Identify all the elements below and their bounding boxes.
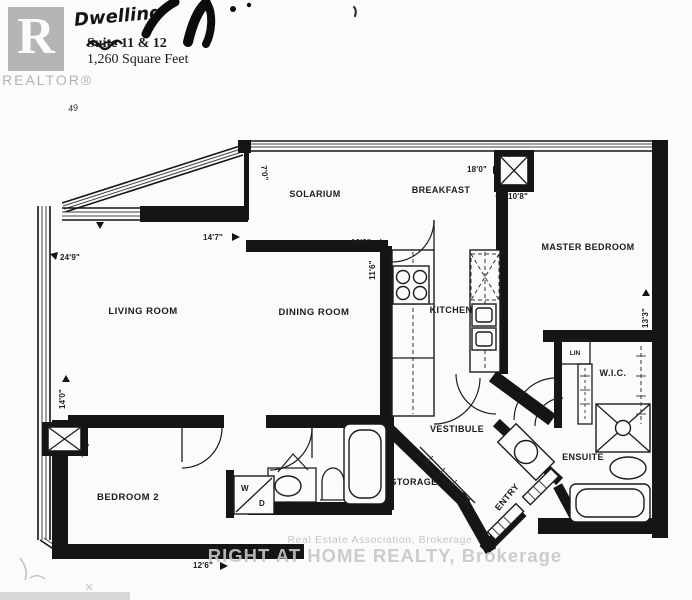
watermark-large: RIGHT AT HOME REALTY, Brokerage: [208, 545, 562, 566]
room-label-bedroom2: BEDROOM 2: [97, 492, 159, 503]
room-label-ensuite: ENSUITE: [562, 452, 604, 462]
ensuite-tub-icon: [570, 484, 650, 522]
wall-right: [652, 140, 668, 538]
dim-master-width: 10'8": [508, 192, 528, 201]
room-label-kitchen: KITCHEN: [430, 305, 473, 315]
room-label-living: LIVING ROOM: [108, 306, 177, 317]
marker-scrawl: [146, 2, 356, 44]
washer-label: W: [241, 484, 249, 493]
room-label-dining: DINING ROOM: [279, 307, 350, 318]
toilet-icon: [320, 468, 346, 500]
wall-top-corner: [238, 140, 251, 153]
dim-solarium-depth: 7'0": [259, 165, 270, 181]
dim-solarium-width: 10'0": [351, 238, 371, 247]
wall-solarium-left: [244, 146, 249, 220]
door-arc-bedroom2: [182, 428, 222, 468]
room-label-master: MASTER BEDROOM: [541, 242, 634, 252]
bath-vanity-sink-icon: [268, 468, 316, 502]
wall-bed2-top-a: [68, 415, 224, 428]
shaft-icon: [494, 150, 534, 192]
dim-kitchen-depth: 11'6": [368, 260, 377, 280]
door-arc-bath: [270, 428, 312, 470]
ensuite-sink-icon: [610, 457, 646, 479]
window-band-diagonal: [62, 146, 243, 212]
dim-master-depth: 13'3": [641, 308, 650, 328]
dim-living-width: 14'7": [203, 233, 223, 242]
room-label-storage: STORAGE: [390, 477, 437, 487]
scan-smudge: [0, 592, 130, 600]
stove-icon: [393, 266, 429, 304]
room-label-lin: LIN: [570, 350, 581, 357]
suite-overwrite-scribble: [87, 41, 122, 49]
floorplan-scan: R REALTOR® Dwelling Suite 11 & 12 1,260 …: [0, 0, 692, 600]
floor-plan: W D: [0, 0, 692, 600]
shower-icon: [596, 404, 650, 452]
room-label-solarium: SOLARIUM: [289, 189, 340, 199]
dryer-label: D: [259, 499, 265, 508]
dim-breakfast-width: 18'0": [467, 165, 487, 174]
wall-kitchen-left: [380, 246, 392, 418]
wall-living-top: [140, 206, 248, 222]
pencil-scribbles: [20, 558, 92, 590]
room-label-vestibule: VESTIBULE: [430, 424, 484, 434]
dim-bedroom2-depth: 14'0": [58, 389, 67, 409]
room-label-breakfast: BREAKFAST: [412, 185, 471, 195]
room-label-wic: W.I.C.: [600, 368, 627, 378]
bathtub-icon: [344, 424, 386, 504]
window-band-top: [238, 141, 666, 151]
dim-living-depth: 24'9": [60, 253, 80, 262]
